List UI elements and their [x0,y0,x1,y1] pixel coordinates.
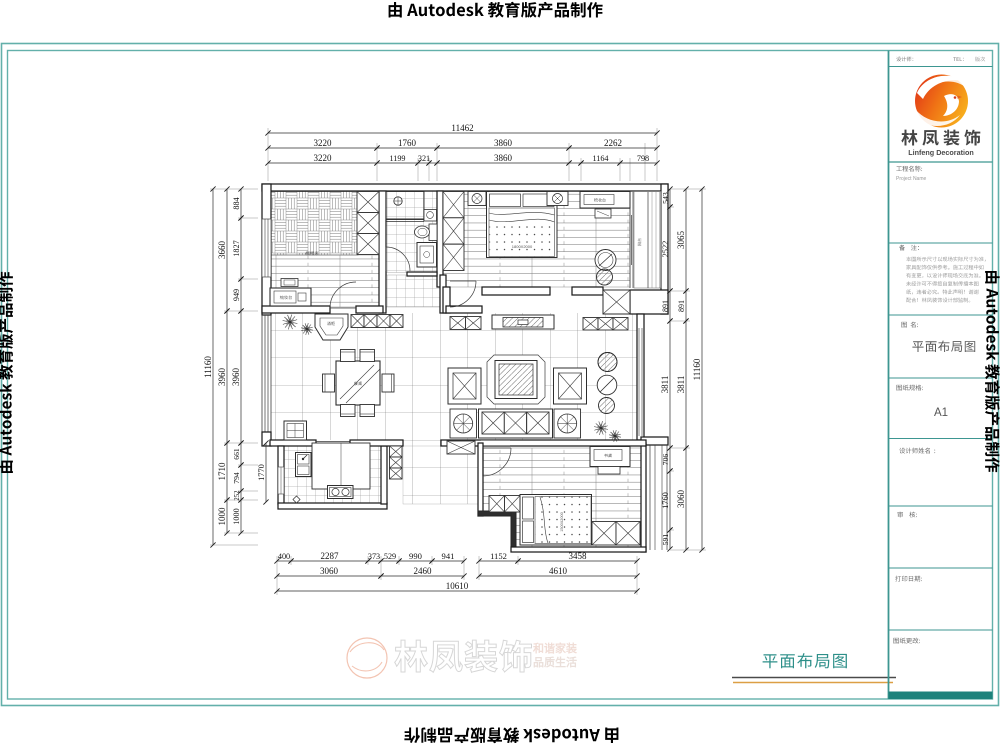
svg-text:Linfeng Decoration: Linfeng Decoration [908,148,974,157]
svg-text:990: 990 [409,551,422,561]
svg-text:1000: 1000 [232,508,241,524]
svg-text:3065: 3065 [676,231,686,250]
svg-text:3960: 3960 [217,368,227,387]
svg-text:3458: 3458 [569,551,588,561]
svg-text:4610: 4610 [549,566,568,576]
svg-text:1760: 1760 [661,492,670,509]
svg-text:3811: 3811 [676,376,686,394]
svg-text:543: 543 [661,192,670,204]
svg-text:10610: 10610 [446,581,469,591]
svg-text:3811: 3811 [660,376,670,394]
svg-text:798: 798 [637,154,649,163]
svg-text:11160: 11160 [692,358,702,380]
svg-text:1827: 1827 [232,240,241,256]
svg-text:3060: 3060 [676,490,686,509]
svg-text:1760: 1760 [398,138,417,148]
svg-text:884: 884 [232,197,241,209]
svg-text:3220: 3220 [314,138,333,148]
svg-text:706: 706 [661,454,670,466]
svg-text:3060: 3060 [320,566,339,576]
svg-text:Project Name: Project Name [896,176,927,182]
svg-text:1199: 1199 [389,154,405,163]
svg-text:3220: 3220 [314,153,333,163]
svg-text:891: 891 [661,300,670,312]
svg-text:和谐家装: 和谐家装 [533,641,577,655]
svg-text:1770: 1770 [257,464,266,481]
svg-text:2460: 2460 [414,566,433,576]
svg-text:1152: 1152 [490,551,507,561]
svg-text:321: 321 [418,154,430,163]
svg-text:529: 529 [384,552,396,561]
svg-text:1000: 1000 [217,507,227,526]
svg-text:1164: 1164 [592,154,608,163]
svg-text:2287: 2287 [321,551,340,561]
svg-text:1500X2000: 1500X2000 [560,512,564,531]
svg-text:11160: 11160 [203,356,213,378]
svg-text:252: 252 [234,490,241,501]
svg-text:591: 591 [661,534,670,546]
svg-text:A1: A1 [934,407,948,419]
svg-text:941: 941 [442,551,455,561]
svg-text:3860: 3860 [494,153,513,163]
svg-text:品质生活: 品质生活 [533,655,577,669]
svg-text:3960: 3960 [231,368,241,387]
svg-text:891: 891 [677,300,686,312]
svg-text:11462: 11462 [451,123,473,133]
svg-text:3860: 3860 [494,138,513,148]
svg-text:400: 400 [278,552,290,561]
svg-text:661: 661 [232,448,241,460]
svg-text:1800X2000: 1800X2000 [512,244,533,249]
svg-text:373: 373 [368,552,380,561]
svg-text:1710: 1710 [217,462,227,481]
svg-text:2522: 2522 [661,241,670,258]
svg-text:2262: 2262 [604,138,622,148]
svg-text:794: 794 [232,472,241,484]
svg-text:3660: 3660 [217,241,227,260]
svg-text:949: 949 [232,289,241,301]
